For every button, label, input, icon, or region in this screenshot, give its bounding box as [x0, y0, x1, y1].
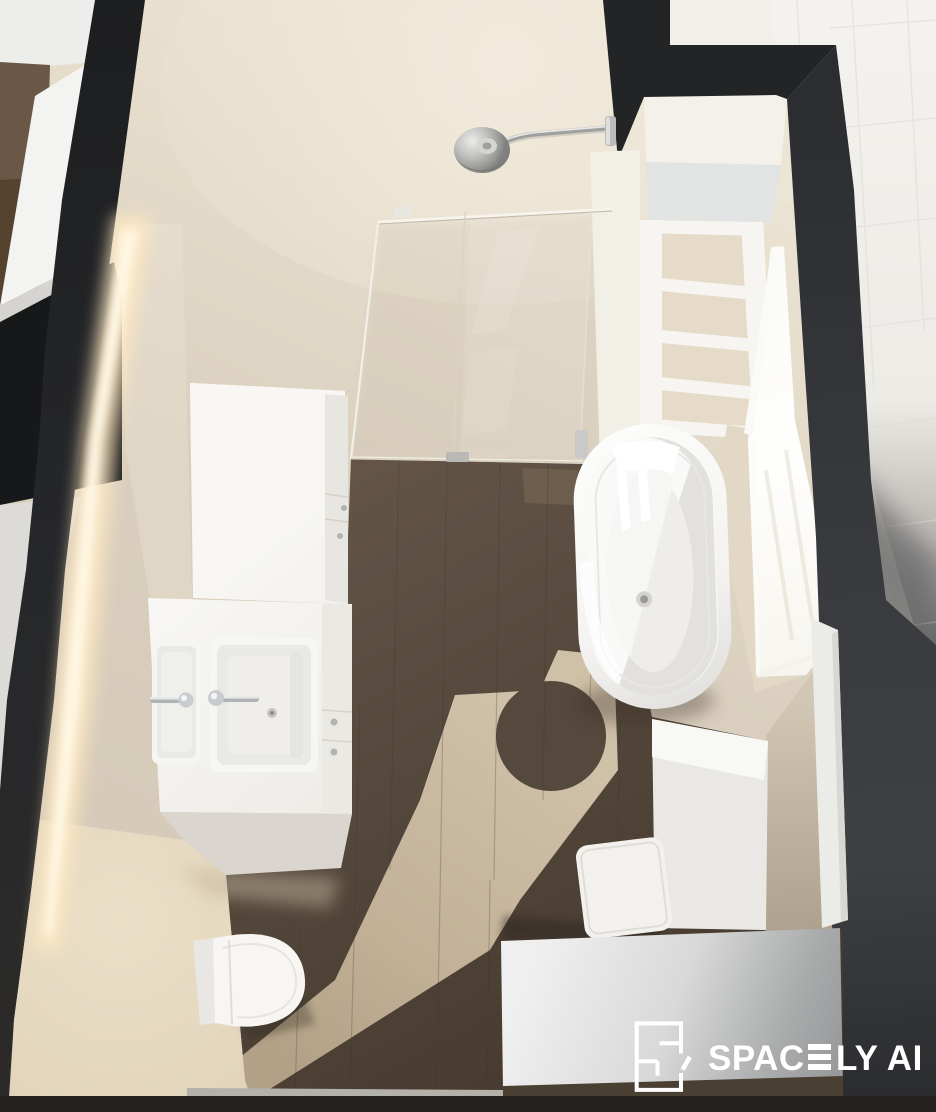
svg-text:LY AI: LY AI: [836, 1039, 923, 1078]
svg-text:SPAC: SPAC: [708, 1039, 805, 1078]
